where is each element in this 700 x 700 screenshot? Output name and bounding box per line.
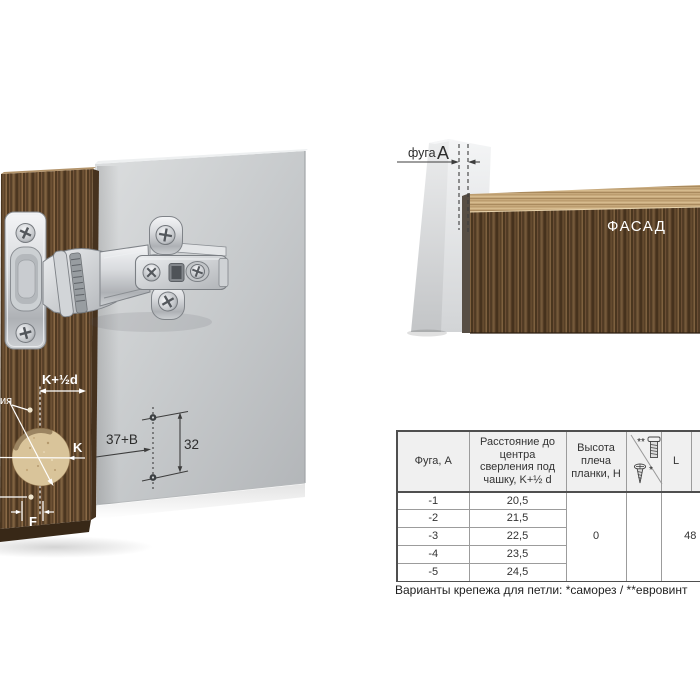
euroscrew-icon [648, 437, 660, 458]
cabinet-panel [95, 149, 308, 519]
corner-diagram: фуга A ФАСАД [397, 139, 700, 337]
col-header-length: L [661, 431, 691, 492]
table-row: -1 20,5 0 48 [397, 492, 700, 510]
fastener-variants-caption: Варианты крепежа для петли: *саморез / *… [395, 583, 688, 597]
length-value: 48 [661, 492, 700, 582]
self-tapping-screw-icon [634, 464, 645, 483]
distance-value: 20,5 [469, 492, 566, 510]
dim-32-label: 32 [184, 437, 199, 452]
fuga-value: -2 [397, 510, 469, 528]
fuga-value: -5 [397, 564, 469, 582]
euroscrew-mark: ** [637, 437, 645, 448]
fuga-param: A [437, 143, 449, 163]
distance-value: 24,5 [469, 564, 566, 582]
distance-value: 21,5 [469, 510, 566, 528]
col-header-distance: Расстояние до центра сверления под чашку… [469, 431, 566, 492]
fastener-icons: ** [629, 433, 664, 486]
axis-label-partial: ия [0, 395, 12, 407]
dim-37b-label: 37+B [106, 432, 138, 447]
distance-value: 23,5 [469, 546, 566, 564]
col-header-shoulder: Высота плеча планки, H [566, 431, 626, 492]
panel-facade-gap [462, 193, 470, 333]
facade-panel [470, 185, 700, 333]
fastener-cell-empty [626, 492, 661, 582]
facade-label: ФАСАД [607, 218, 666, 235]
plate-oval-screw [186, 262, 209, 282]
catalog-page: { "page": {"background": "#ffffff"}, "il… [0, 0, 700, 700]
dim-f-label: F [29, 514, 37, 529]
fuga-value: -4 [397, 546, 469, 564]
col-header-cut [691, 431, 700, 492]
fuga-value: -3 [397, 528, 469, 546]
fuga-word: фуга [408, 146, 436, 160]
main-illustration: K+½d ия K [0, 149, 308, 558]
hinge-cup-plate [5, 212, 46, 349]
distance-value: 22,5 [469, 528, 566, 546]
spec-table: Фуга, А Расстояние до центра сверления п… [396, 430, 700, 582]
dim-cup-offset-label: K+½d [42, 372, 78, 387]
self-tapper-mark: * [649, 465, 653, 476]
shoulder-height-value: 0 [566, 492, 626, 582]
col-header-fasteners: ** [626, 431, 661, 492]
fuga-value: -1 [397, 492, 469, 510]
dim-k-label: K [73, 440, 83, 455]
cup-hole [12, 428, 70, 486]
spec-table-wrap: Фуга, А Расстояние до центра сверления п… [396, 430, 700, 582]
col-header-fuga: Фуга, А [397, 431, 469, 492]
